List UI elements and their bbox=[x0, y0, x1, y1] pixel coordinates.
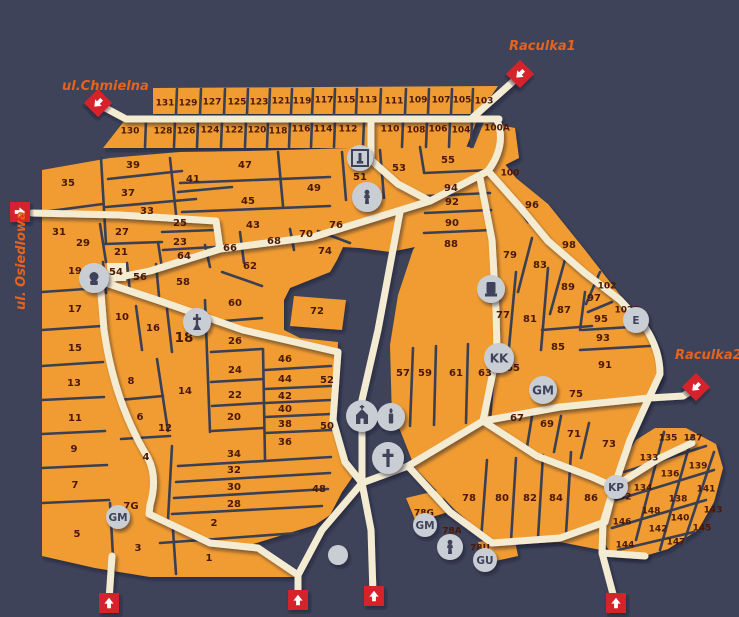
section-label-27: 27 bbox=[115, 227, 129, 238]
section-label-123: 123 bbox=[250, 98, 269, 108]
section-label-130: 130 bbox=[121, 127, 140, 137]
section-label-12: 12 bbox=[158, 423, 172, 434]
section-label-94: 94 bbox=[444, 183, 458, 194]
section-label-89: 89 bbox=[561, 282, 575, 293]
section-label-141: 141 bbox=[697, 485, 716, 495]
section-label-47: 47 bbox=[238, 160, 252, 171]
section-label-31: 31 bbox=[52, 227, 66, 238]
section-label-125: 125 bbox=[228, 98, 247, 108]
section-label-96: 96 bbox=[525, 200, 539, 211]
section-label-13: 13 bbox=[67, 378, 81, 389]
section-label-49: 49 bbox=[307, 183, 321, 194]
section-label-72: 72 bbox=[310, 306, 324, 317]
candle-icon bbox=[377, 403, 405, 431]
section-label-113: 113 bbox=[359, 96, 378, 106]
svg-text:GU: GU bbox=[476, 555, 493, 567]
section-label-46: 46 bbox=[278, 354, 292, 365]
section-label-131: 131 bbox=[156, 99, 175, 109]
section-label-61: 61 bbox=[449, 368, 463, 379]
section-label-119: 119 bbox=[293, 97, 312, 107]
cross-icon bbox=[372, 442, 404, 474]
section-label-38: 38 bbox=[278, 419, 292, 430]
svg-text:GM: GM bbox=[532, 384, 554, 398]
street-label-raculka1: Raculka1 bbox=[509, 39, 576, 54]
section-label-146: 146 bbox=[613, 518, 632, 528]
section-label-133: 133 bbox=[640, 454, 659, 464]
entrance-marker-south-4 bbox=[606, 593, 626, 613]
section-label-116: 116 bbox=[292, 125, 311, 135]
section-label-105: 105 bbox=[453, 96, 472, 106]
section-label-106: 106 bbox=[429, 125, 448, 135]
section-label-135: 135 bbox=[659, 434, 678, 444]
section-label-39: 39 bbox=[126, 160, 140, 171]
section-label-10: 10 bbox=[115, 312, 129, 323]
section-label-71: 71 bbox=[567, 429, 581, 440]
section-label-108: 108 bbox=[407, 126, 426, 136]
section-label-117: 117 bbox=[315, 96, 334, 106]
monument-outline-icon bbox=[347, 145, 373, 171]
section-label-104: 104 bbox=[452, 126, 471, 136]
section-label-6: 6 bbox=[137, 412, 144, 423]
section-label-11: 11 bbox=[68, 413, 82, 424]
section-label-55: 55 bbox=[441, 155, 455, 166]
section-label-84: 84 bbox=[549, 493, 563, 504]
svg-text:E: E bbox=[632, 315, 639, 327]
section-label-112: 112 bbox=[339, 125, 358, 135]
section-label-67: 67 bbox=[510, 413, 524, 424]
section-label-83: 83 bbox=[533, 260, 547, 271]
plain-icon bbox=[328, 545, 348, 565]
section-label-21: 21 bbox=[114, 247, 128, 258]
section-label-147: 147 bbox=[667, 538, 686, 548]
section-label-78: 78 bbox=[462, 493, 476, 504]
section-label-77: 77 bbox=[496, 310, 510, 321]
section-label-110: 110 bbox=[381, 125, 400, 135]
cemetery-map: Cmentarz Komunalny przy ulicy Wrocławski… bbox=[0, 0, 739, 617]
section-label-92: 92 bbox=[445, 197, 459, 208]
section-label-69: 69 bbox=[540, 419, 554, 430]
section-label-59: 59 bbox=[418, 368, 432, 379]
street-label-ul-chmielna: ul.Chmielna bbox=[62, 79, 149, 94]
path-segment-24 bbox=[602, 553, 645, 556]
section-label-8: 8 bbox=[128, 376, 135, 387]
section-label-35: 35 bbox=[61, 178, 75, 189]
section-label-30: 30 bbox=[227, 482, 241, 493]
section-label-57: 57 bbox=[396, 368, 410, 379]
section-label-126: 126 bbox=[177, 127, 196, 137]
entrance-marker-south-3 bbox=[364, 586, 384, 606]
section-label-62: 62 bbox=[243, 261, 257, 272]
monument-icon bbox=[477, 275, 505, 303]
section-label-3: 3 bbox=[135, 543, 142, 554]
section-label-26: 26 bbox=[228, 336, 242, 347]
gu-marker-icon: GU bbox=[473, 548, 497, 572]
gm-marker-icon: GM bbox=[529, 376, 557, 404]
section-label-9: 9 bbox=[71, 444, 78, 455]
kp-marker-icon: KP bbox=[604, 475, 628, 499]
section-label-134: 134 bbox=[634, 484, 653, 494]
section-label-95: 95 bbox=[594, 314, 608, 325]
section-label-52: 52 bbox=[320, 375, 334, 386]
section-label-93: 93 bbox=[596, 333, 610, 344]
section-label-111: 111 bbox=[385, 97, 404, 107]
section-label-74: 74 bbox=[318, 246, 332, 257]
section-label-137: 137 bbox=[684, 434, 703, 444]
section-label-28: 28 bbox=[227, 499, 241, 510]
angel-icon bbox=[183, 308, 211, 336]
section-label-73: 73 bbox=[602, 439, 616, 450]
section-label-34: 34 bbox=[227, 449, 241, 460]
section-label-41: 41 bbox=[186, 174, 200, 185]
section-label-1: 1 bbox=[206, 553, 213, 564]
section-label-68: 68 bbox=[267, 236, 281, 247]
section-label-129: 129 bbox=[179, 99, 198, 109]
section-label-100A: 100A bbox=[484, 124, 510, 134]
cemetery-map-svg: 1311291271251231211191171151131111091071… bbox=[0, 0, 739, 617]
section-label-97: 97 bbox=[587, 293, 601, 304]
section-label-82: 82 bbox=[523, 493, 537, 504]
section-label-7: 7 bbox=[72, 480, 79, 491]
section-label-56: 56 bbox=[133, 272, 147, 283]
svg-text:GM: GM bbox=[415, 520, 434, 532]
section-label-140: 140 bbox=[671, 514, 690, 524]
section-label-115: 115 bbox=[337, 96, 356, 106]
section-label-42: 42 bbox=[278, 391, 292, 402]
chapel-icon bbox=[346, 400, 378, 432]
section-label-136: 136 bbox=[661, 470, 680, 480]
section-label-44: 44 bbox=[278, 374, 292, 385]
gm-marker-icon: GM bbox=[413, 513, 437, 537]
section-label-120: 120 bbox=[248, 126, 267, 136]
section-label-114: 114 bbox=[314, 125, 333, 135]
section-label-43: 43 bbox=[246, 220, 260, 231]
section-label-54: 54 bbox=[109, 267, 123, 278]
section-label-144: 144 bbox=[616, 541, 635, 551]
section-label-33: 33 bbox=[140, 206, 154, 217]
section-label-2: 2 bbox=[211, 518, 218, 529]
section-label-45: 45 bbox=[241, 196, 255, 207]
section-label-4: 4 bbox=[143, 452, 150, 463]
section-label-86: 86 bbox=[584, 493, 598, 504]
section-label-85: 85 bbox=[551, 342, 565, 353]
section-label-90: 90 bbox=[445, 218, 459, 229]
section-label-100: 100 bbox=[501, 169, 520, 179]
section-label-107: 107 bbox=[432, 96, 451, 106]
svg-text:KK: KK bbox=[490, 352, 509, 366]
section-label-76: 76 bbox=[329, 220, 343, 231]
section-label-50: 50 bbox=[320, 421, 334, 432]
section-label-128: 128 bbox=[154, 127, 173, 137]
section-label-51: 51 bbox=[353, 172, 367, 183]
section-label-5: 5 bbox=[74, 529, 81, 540]
section-label-70: 70 bbox=[299, 229, 313, 240]
section-label-24: 24 bbox=[228, 365, 242, 376]
entrance-marker-south-2 bbox=[288, 590, 308, 610]
section-label-60: 60 bbox=[228, 298, 242, 309]
section-label-102: 102 bbox=[598, 282, 617, 292]
section-label-138: 138 bbox=[669, 495, 688, 505]
section-label-22: 22 bbox=[228, 390, 242, 401]
section-label-53: 53 bbox=[392, 163, 406, 174]
entrance-marker-south-1 bbox=[99, 593, 119, 613]
section-label-40: 40 bbox=[278, 404, 292, 415]
section-label-148: 148 bbox=[642, 507, 661, 517]
section-label-29: 29 bbox=[76, 238, 90, 249]
statue-icon bbox=[352, 182, 382, 212]
section-label-118: 118 bbox=[269, 127, 288, 137]
section-label-37: 37 bbox=[121, 188, 135, 199]
section-label-23: 23 bbox=[173, 237, 187, 248]
section-label-36: 36 bbox=[278, 437, 292, 448]
section-label-142: 142 bbox=[649, 525, 668, 535]
svg-text:KP: KP bbox=[608, 482, 624, 494]
section-label-66: 66 bbox=[223, 243, 237, 254]
section-label-17: 17 bbox=[68, 304, 82, 315]
section-label-64: 64 bbox=[177, 251, 191, 262]
section-label-109: 109 bbox=[409, 96, 428, 106]
section-label-20: 20 bbox=[227, 412, 241, 423]
section-label-103: 103 bbox=[475, 97, 494, 107]
bust-icon bbox=[79, 263, 109, 293]
section-label-122: 122 bbox=[225, 126, 244, 136]
section-label-145: 145 bbox=[693, 524, 712, 534]
section-label-121: 121 bbox=[272, 97, 291, 107]
section-label-88: 88 bbox=[444, 239, 458, 250]
section-label-48: 48 bbox=[312, 484, 326, 495]
section-label-25: 25 bbox=[173, 218, 187, 229]
section-label-15: 15 bbox=[68, 343, 82, 354]
svg-text:GM: GM bbox=[108, 512, 127, 524]
statue-icon bbox=[437, 534, 463, 560]
street-label-raculka2: Raculka2 bbox=[675, 348, 739, 363]
section-label-127: 127 bbox=[203, 98, 222, 108]
section-label-91: 91 bbox=[598, 360, 612, 371]
section-label-87: 87 bbox=[557, 305, 571, 316]
gm-marker-icon: GM bbox=[106, 505, 130, 529]
street-label-ul-osiedlowa: ul. Osiedlowa bbox=[14, 211, 29, 310]
section-label-124: 124 bbox=[201, 126, 220, 136]
section-label-143: 143 bbox=[704, 506, 723, 516]
kk-marker-icon: KK bbox=[484, 343, 514, 373]
section-label-14: 14 bbox=[178, 386, 192, 397]
section-label-32: 32 bbox=[227, 465, 241, 476]
section-label-16: 16 bbox=[146, 323, 160, 334]
section-label-139: 139 bbox=[689, 462, 708, 472]
section-label-58: 58 bbox=[176, 277, 190, 288]
section-label-98: 98 bbox=[562, 240, 576, 251]
e-marker-icon: E bbox=[623, 307, 649, 333]
section-label-80: 80 bbox=[495, 493, 509, 504]
section-label-81: 81 bbox=[523, 314, 537, 325]
section-label-75: 75 bbox=[569, 389, 583, 400]
section-label-79: 79 bbox=[503, 250, 517, 261]
